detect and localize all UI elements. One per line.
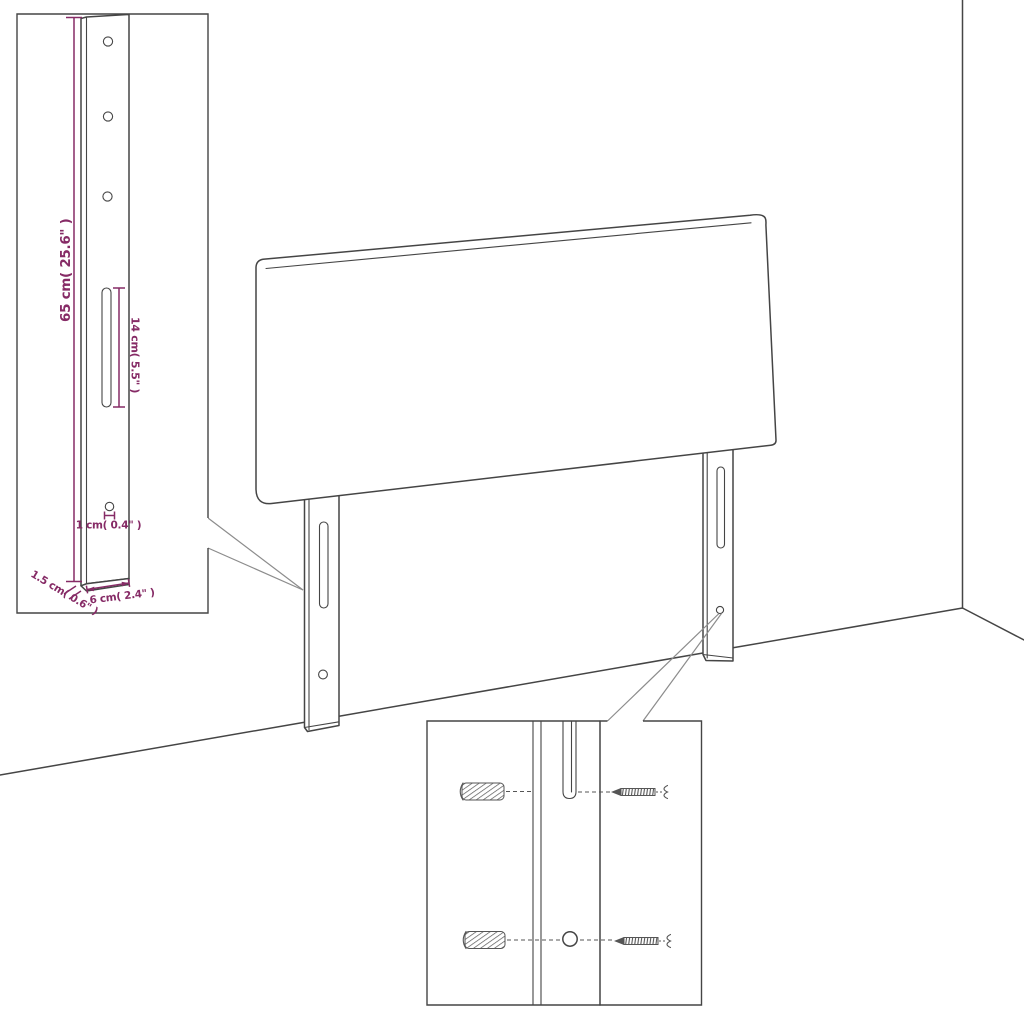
inset-bracket-detail: 65 cm( 25.6" ) 14 cm( 5.5" ) 1 cm( 0.4" … xyxy=(17,14,208,618)
inset2-bg xyxy=(427,721,702,1005)
screw-shaft-1 xyxy=(621,789,655,796)
wall-plug-1 xyxy=(462,783,504,800)
floor-line-right xyxy=(963,608,1024,640)
left-leg-body xyxy=(305,470,340,732)
screw-shaft-2 xyxy=(624,938,658,945)
wall-plug-2 xyxy=(465,932,505,949)
bracket-drawing xyxy=(81,15,129,592)
floor-line-middle xyxy=(339,653,703,716)
headboard-dimension-diagram: 65 cm( 25.6" ) 14 cm( 5.5" ) 1 cm( 0.4" … xyxy=(0,0,1024,1024)
panel-outline xyxy=(256,215,776,504)
floor-line-near-corner xyxy=(733,608,963,648)
floor-line-left xyxy=(0,722,305,775)
bracket-outline xyxy=(81,15,129,586)
dimension-14cm-label: 14 cm( 5.5" ) xyxy=(129,317,142,393)
callout-line-right xyxy=(643,614,722,722)
dimension-1cm-label: 1 cm( 0.4" ) xyxy=(76,520,142,532)
headboard-right-leg xyxy=(703,430,733,661)
headboard-panel xyxy=(256,215,776,504)
inset-mounting-detail xyxy=(427,721,702,1005)
headboard-left-leg xyxy=(305,470,340,732)
callout-wedge-bracket xyxy=(208,518,303,590)
dimension-65cm-label: 65 cm( 25.6" ) xyxy=(58,218,74,322)
